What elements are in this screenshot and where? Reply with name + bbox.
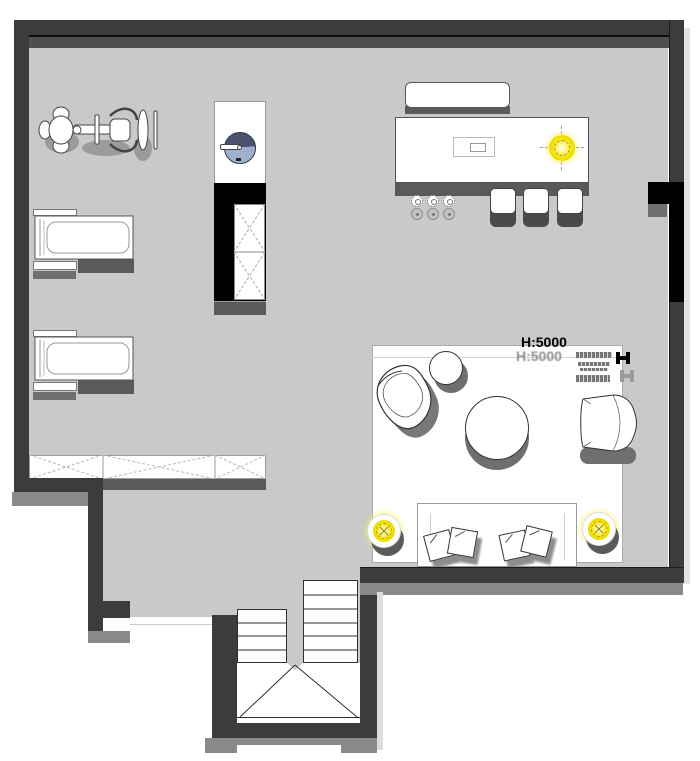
cup-shadow (411, 208, 423, 220)
spotlight-ring (591, 521, 607, 537)
cabinet-shadow (214, 302, 266, 315)
bar-stool-1 (490, 188, 516, 214)
storage-bench (29, 455, 266, 479)
bar-stool-3 (557, 188, 583, 214)
stair-entry-line (130, 624, 212, 625)
wardrobe-x-panel (234, 204, 265, 300)
floor-plan-canvas: H:5000 H:5000 (0, 0, 700, 761)
stair-wall-bottom (212, 723, 377, 738)
cushion-2 (447, 527, 478, 558)
bar-sink-inner (470, 143, 486, 152)
ceiling-height-label: H:5000 (521, 335, 567, 349)
stair-foot-shadow (205, 738, 237, 753)
sofa-line (564, 513, 565, 560)
wall-left-lower (88, 492, 103, 631)
wall-bottom-seating (360, 567, 683, 583)
dumbbell-icon (616, 352, 630, 364)
drain-mark (236, 158, 241, 161)
armchair (576, 393, 640, 469)
wall-bottom-left (14, 478, 103, 492)
bar-shelf (405, 82, 510, 108)
spotlight-ring (376, 523, 392, 539)
cup-icon (443, 195, 455, 207)
wall-left (14, 20, 29, 492)
building-outer-shadow (377, 592, 383, 750)
stair-foot-shadow (341, 738, 377, 753)
wall-top (14, 20, 684, 35)
building-outer-shadow (684, 28, 690, 584)
cup-shadow (443, 208, 455, 220)
wall-shadow (88, 631, 130, 643)
cup-icon (427, 195, 439, 207)
wall-foot (103, 601, 130, 618)
treadmill-2 (33, 329, 139, 401)
side-stool (429, 351, 463, 385)
stair-wall-left (212, 615, 237, 738)
cup-icon (411, 195, 423, 207)
stair-foot-shadow (237, 738, 341, 745)
downlight-ring (554, 140, 570, 156)
bar-stool-2 (523, 188, 549, 214)
round-ottoman (465, 396, 529, 460)
watermark-logo (576, 349, 638, 389)
wall-shadow (12, 492, 90, 506)
wall-black-column-top (648, 182, 684, 204)
dumbbell-icon (620, 370, 634, 382)
treadmill-1 (33, 208, 139, 280)
faucet-dot (237, 145, 242, 150)
wall-shadow (360, 583, 683, 595)
column-shadow (648, 204, 667, 217)
cup-shadow (427, 208, 439, 220)
wall-top-accent (29, 37, 669, 48)
ceiling-height-label-shadow: H:5000 (516, 349, 562, 363)
spin-bike (36, 96, 168, 174)
wall-black-column (669, 204, 684, 302)
